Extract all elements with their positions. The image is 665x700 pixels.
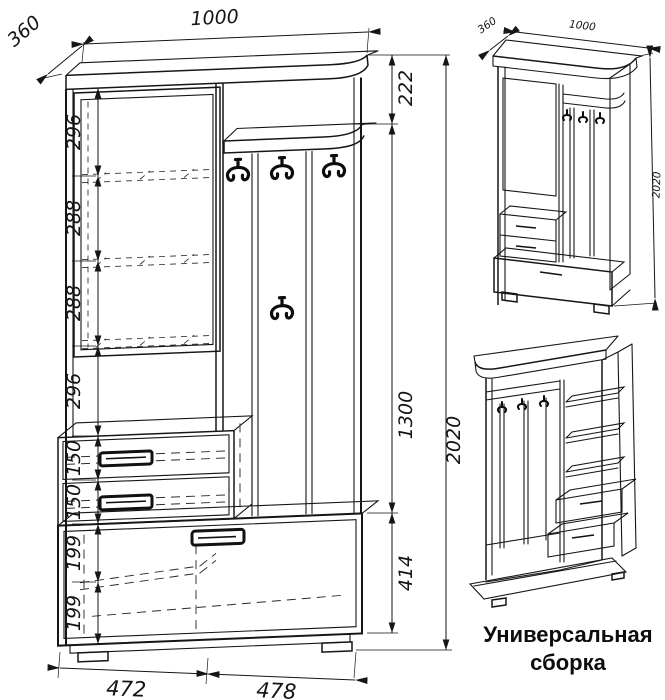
iso-partition [559, 84, 563, 262]
coat-hook-icon [540, 396, 548, 406]
dim-total-height-2020: 2020 [443, 416, 465, 464]
mirror-glass-hatch [81, 94, 213, 349]
iso-dim-2020: 2020 [651, 171, 664, 198]
mir-top-board [474, 336, 618, 378]
dim-right-1300: 1300 [395, 391, 417, 439]
coat-hook-icon [596, 113, 604, 123]
dim-left-296-top: 296 [63, 114, 85, 150]
furniture-assembly-drawing: 296 288 288 296 150 150 199 199 222 1300… [0, 0, 665, 700]
dim-bottom-472: 472 [106, 676, 147, 700]
iso-hat-shelf [563, 93, 625, 108]
mir-shelves [566, 387, 624, 477]
bottom-cabinet [58, 501, 378, 663]
dim-depth-360: 360 [3, 11, 45, 51]
caption-line1: Универсальная [483, 622, 652, 647]
dim-left-288-b: 288 [63, 285, 85, 321]
dimension-right-chain: 222 1300 414 2020 [356, 55, 465, 650]
iso-dim-1000: 1000 [568, 18, 596, 33]
iso-mirror [503, 78, 556, 196]
feet [78, 642, 352, 662]
dim-top-width-1000: 1000 [190, 6, 239, 31]
dimension-bottom: 472 478 [58, 652, 356, 700]
mirror-panel [74, 87, 220, 357]
drawer-unit [58, 416, 252, 526]
dim-left-199-b: 199 [63, 595, 85, 631]
coat-hook-icon [498, 402, 506, 412]
mirrored-assembly-view [470, 336, 636, 607]
dimension-top: 1000 360 [3, 6, 369, 78]
dim-right-414: 414 [395, 555, 417, 591]
dim-left-199-a: 199 [63, 535, 85, 571]
main-unit [58, 51, 378, 663]
assembled-iso-view: 360 1000 2020 [476, 15, 664, 314]
mir-partition [560, 380, 564, 562]
dim-left-288-a: 288 [63, 200, 85, 236]
dim-left-296-bottom: 296 [63, 373, 85, 409]
caption-line2: сборка [530, 650, 606, 675]
coat-hook-icon [271, 297, 292, 318]
drawing-canvas: 296 288 288 296 150 150 199 199 222 1300… [0, 0, 665, 700]
coat-hook-icon [271, 157, 292, 178]
mir-hat-shelf [486, 381, 560, 400]
iso-top-board [493, 40, 642, 79]
main-front-view: 296 288 288 296 150 150 199 199 222 1300… [3, 6, 465, 700]
mir-slats [500, 398, 546, 548]
dimension-left-chain: 296 288 288 296 150 150 199 199 [63, 88, 101, 644]
dim-bottom-478: 478 [256, 678, 297, 700]
hat-shelf [224, 123, 376, 153]
hidden-shelf-lines [82, 168, 212, 348]
dim-left-150-b: 150 [63, 484, 85, 520]
coat-hook-icon [579, 112, 587, 122]
coat-hook-icon [518, 399, 526, 409]
top-board [66, 51, 378, 90]
dim-right-222: 222 [395, 70, 417, 106]
coat-hook-icon [323, 155, 344, 176]
open-flap-door [470, 558, 626, 599]
iso-dim-360: 360 [476, 15, 500, 37]
mir-feet [492, 572, 624, 607]
iso-slats [570, 108, 594, 258]
dim-left-150-a: 150 [63, 440, 85, 476]
back-slats [252, 151, 312, 515]
mir-open-drawers [548, 479, 636, 557]
coat-hook-icon [227, 159, 248, 180]
